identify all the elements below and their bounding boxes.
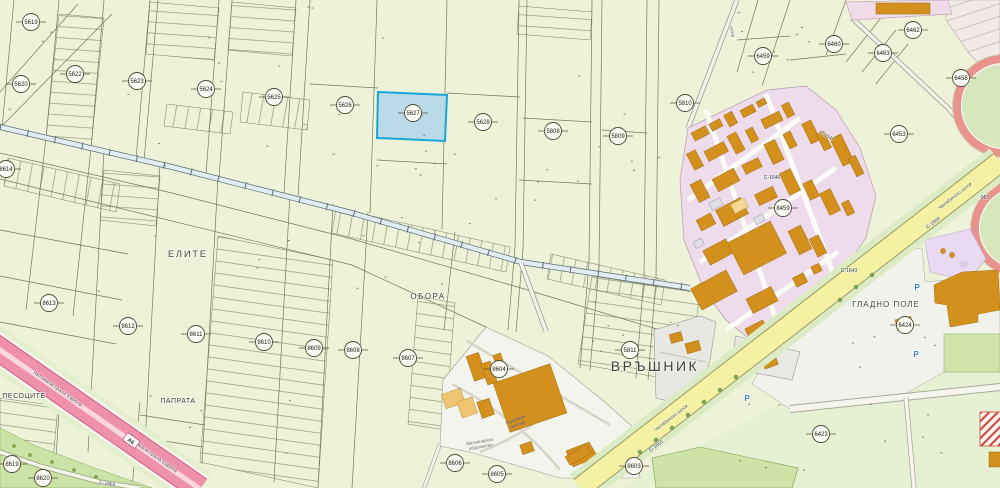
parcel-number: 8608 [346, 348, 360, 354]
parcel-number: 5628 [476, 120, 490, 126]
parcel-number: 6458 [954, 76, 968, 82]
parcel-number: 6423 [814, 432, 828, 438]
parcel-number: 5810 [678, 101, 692, 107]
hatched-building [980, 412, 1000, 446]
area-label: ПАПРАТА [160, 398, 195, 405]
parcel-number: 5623 [130, 79, 144, 85]
parcel-number: 5808 [546, 129, 560, 135]
parcel-number: 5624 [199, 87, 213, 93]
parcel-number: 5809 [611, 134, 625, 140]
parcel-number: 8606 [448, 461, 462, 467]
road-label: 957 [981, 195, 990, 201]
parcel-number: 6463 [876, 51, 890, 57]
parcel-number: 6459 [756, 54, 770, 60]
parcel-number: 8611 [190, 332, 204, 338]
parcel-number: 8605 [490, 472, 504, 478]
parcel-number: 6424 [898, 323, 912, 329]
map-canvas[interactable]: 5619562056225623562456255626562756285808… [0, 0, 1000, 488]
area-label: ВРЪШНИК [611, 358, 699, 374]
parcel-number: 8614 [0, 167, 13, 173]
road-label: С-1643 [841, 268, 858, 274]
area-label: ОБОРА [410, 292, 445, 301]
area-label: ЕЛИТЕ [168, 249, 208, 259]
parcel-number: 5811 [624, 348, 638, 354]
parking-icon: P [914, 283, 920, 292]
parcel-number: 8610 [257, 340, 271, 346]
parcel-number: 8604 [492, 367, 506, 373]
parcel-number: 5626 [338, 103, 352, 109]
parcel-number: 5625 [267, 95, 281, 101]
parcel-number: 6462 [906, 28, 920, 34]
parcel-number: 8603 [627, 464, 641, 470]
parcel-number: 8459 [776, 206, 790, 212]
parcel-number: 6460 [827, 42, 841, 48]
road-label: С-1646 [764, 175, 781, 181]
parcel-number: 8607 [401, 356, 415, 362]
parcel-number: 5619 [24, 20, 38, 26]
parcel-number: 8612 [121, 324, 135, 330]
parcel-number: 8609 [307, 346, 321, 352]
green-field-patch [944, 334, 1000, 372]
parcel-number: 8613 [42, 301, 56, 307]
parcel-number: 5620 [14, 82, 28, 88]
area-label: ПЕСОЦИТЕ [2, 393, 45, 400]
parcel-number: 5622 [68, 72, 82, 78]
parcel-number: 8619 [5, 462, 19, 468]
parking-icon: P [913, 350, 919, 359]
area-label: ГЛАДНО ПОЛЕ [852, 300, 920, 309]
parcel-number: 6453 [892, 132, 906, 138]
parcel-number: 5627 [406, 111, 420, 117]
parcel-number: 8620 [36, 476, 50, 482]
parking-icon: P [744, 394, 750, 403]
cadastral-map-svg: 5619562056225623562456255626562756285808… [0, 0, 1000, 488]
